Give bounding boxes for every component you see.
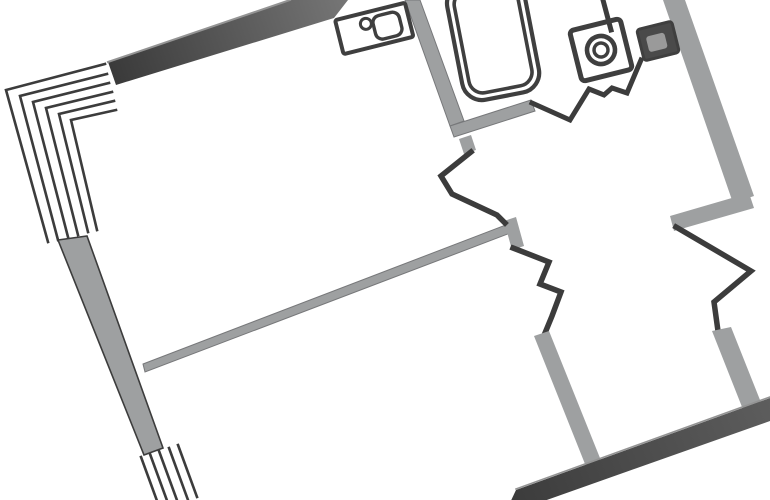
floor-plan-canvas [0, 0, 770, 500]
washing-machine [569, 18, 632, 81]
bathroom-sink [637, 21, 680, 61]
living-partition-wall [143, 223, 513, 372]
bedroom-partition-wall [534, 331, 604, 474]
left-exterior-wall [58, 236, 163, 455]
bathtub [444, 0, 543, 104]
window-hatch-bottom-line [169, 448, 188, 500]
floor-plan-root [6, 0, 770, 500]
bottom-exterior-wall [508, 398, 770, 500]
top-exterior-wall [108, 0, 348, 85]
window-hatch-bottom-line [178, 445, 197, 497]
washing-machine-shape [584, 33, 618, 67]
washing-machine-shape [569, 18, 632, 81]
closet-wall [513, 248, 561, 333]
bathtub-shape [452, 0, 535, 95]
kitchen-sink-shape [359, 17, 372, 30]
kitchen-sink-shape [371, 11, 403, 41]
window-hatch-top-line [71, 110, 116, 230]
floor-plan-view [0, 0, 770, 500]
window-hatch-top-line [59, 101, 114, 232]
kitchen-sink [335, 3, 413, 54]
window-hatch-bottom-line [141, 457, 160, 500]
right-niche-wall [676, 227, 751, 331]
washing-machine-shape [593, 42, 610, 59]
right-exterior-wall-upper [663, 0, 754, 203]
window-hatch-top-line [6, 64, 105, 242]
alcove-wall [441, 152, 505, 223]
bottom-wall-highlight [516, 397, 770, 489]
entry-wall-stub [603, 0, 611, 30]
right-exterior-wall-lower [712, 327, 762, 412]
right-wall-jut [670, 193, 754, 231]
window-hatch-bottom-line [159, 451, 178, 500]
